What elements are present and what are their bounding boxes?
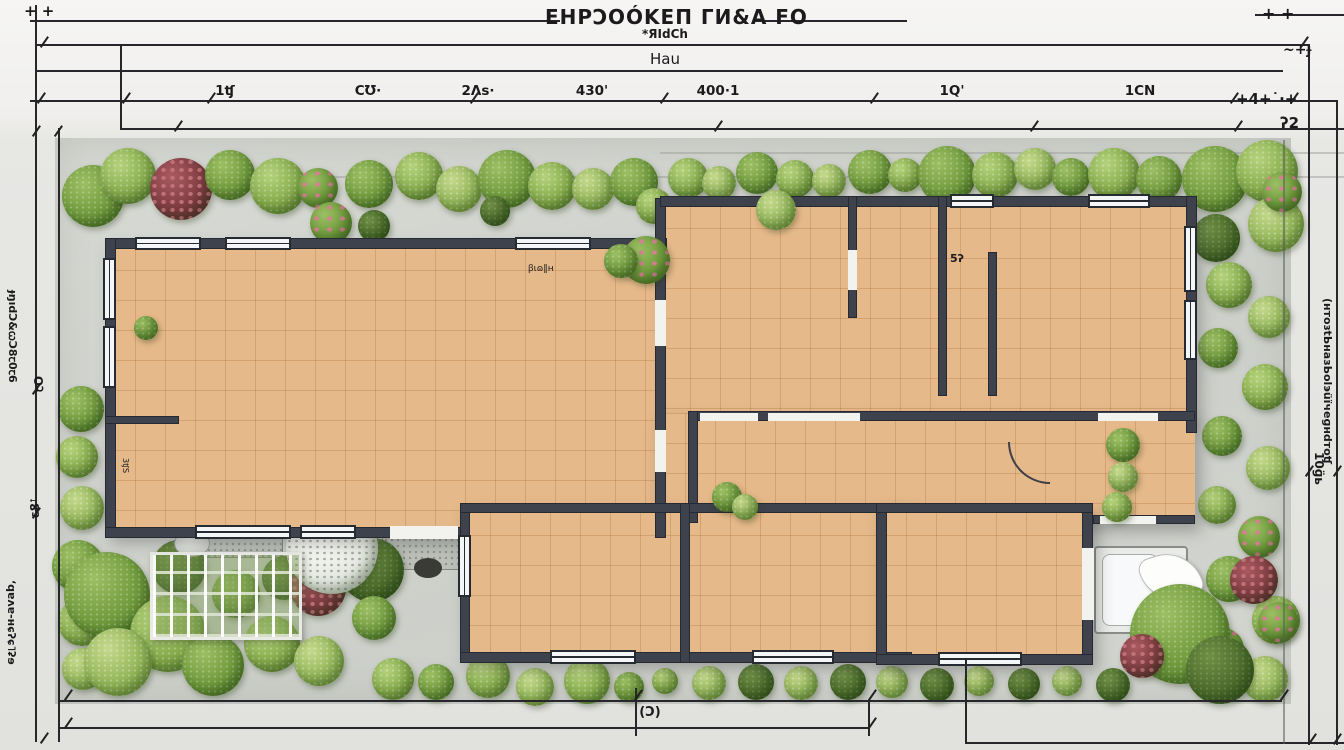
blanket bbox=[682, 240, 740, 290]
dimension-line bbox=[1283, 140, 1285, 744]
coat-rack-pole bbox=[303, 304, 316, 430]
toilet bbox=[136, 476, 174, 508]
garden-bush bbox=[150, 158, 212, 220]
cabinet bbox=[890, 544, 910, 624]
sofa-cushion bbox=[948, 424, 990, 454]
table bbox=[1026, 226, 1078, 308]
garden-bush bbox=[418, 664, 454, 700]
garden-bush bbox=[736, 152, 778, 194]
dimension-tick bbox=[37, 92, 46, 104]
garden-bush bbox=[1206, 262, 1252, 308]
basin-bowl bbox=[496, 526, 514, 542]
floor-plan-scene: EHPϽOÓKЕП ГИ&А FO *ЯIdCh Hau 1ʧ CƱ· 2Ʌs·… bbox=[0, 0, 1344, 750]
pillow bbox=[704, 526, 746, 544]
dimension-line bbox=[120, 44, 122, 130]
shelf-unit bbox=[360, 292, 402, 394]
garden-bush bbox=[1242, 364, 1288, 410]
garden-bush bbox=[692, 666, 726, 700]
dim-label-top: 400·1 bbox=[678, 83, 758, 99]
garden-bush bbox=[1108, 462, 1138, 492]
garden-bush bbox=[1096, 668, 1130, 702]
doorway bbox=[390, 526, 458, 539]
nightstand bbox=[1050, 522, 1068, 540]
doorway bbox=[768, 413, 860, 421]
garden-bush bbox=[528, 162, 576, 210]
dimension-tick bbox=[174, 120, 183, 132]
garden-bush bbox=[848, 150, 892, 194]
garden-bush bbox=[1088, 148, 1140, 200]
window bbox=[515, 237, 591, 250]
window bbox=[458, 535, 471, 597]
wardrobe bbox=[888, 206, 936, 258]
dimension-tick bbox=[1030, 120, 1039, 132]
garden-bush bbox=[1120, 634, 1164, 678]
garden-bush bbox=[564, 658, 610, 704]
doorway bbox=[700, 413, 758, 421]
dimension-tick bbox=[122, 92, 131, 104]
blanket bbox=[1118, 272, 1172, 352]
dim-corner-mark: ~+ɟ bbox=[1283, 42, 1311, 58]
plan-subtitle-2: Hau bbox=[545, 50, 785, 68]
window bbox=[1184, 300, 1197, 360]
rug-oval bbox=[1028, 318, 1062, 342]
wall-cabinet bbox=[383, 250, 523, 276]
pillow bbox=[1120, 247, 1168, 267]
dim-label-top: 2Ʌs· bbox=[438, 83, 518, 99]
dim-label-top: 1Q' bbox=[912, 83, 992, 99]
dimension-line bbox=[965, 742, 1344, 744]
island-label: ꞵɩɷ‖ʜ bbox=[528, 261, 554, 274]
dim-text-left-upper: ɟŋıdƆ&ꞷƆ8ꞇ0ꞇ6 bbox=[5, 290, 20, 383]
dimension-line bbox=[1308, 44, 1310, 745]
dim-text-right: (ʜтоɜtЬназЬоlэüïчеɡнdтоʧ bbox=[1321, 298, 1334, 464]
garden-bush bbox=[738, 664, 774, 700]
garden-bush bbox=[1102, 492, 1132, 522]
dim-label-left: ɛ8ꜛ bbox=[28, 498, 42, 518]
sofa bbox=[516, 422, 592, 456]
window bbox=[135, 237, 201, 250]
blanket bbox=[542, 598, 588, 632]
doorway bbox=[1098, 413, 1158, 421]
garden-bush bbox=[60, 486, 104, 530]
toilet-tank bbox=[958, 362, 980, 380]
shower bbox=[942, 288, 982, 348]
sink-block bbox=[540, 380, 556, 393]
pillow bbox=[1014, 604, 1058, 632]
garden-bush bbox=[1202, 416, 1242, 456]
dimension-tick bbox=[40, 36, 49, 48]
dimension-line bbox=[58, 128, 60, 742]
garden-bush bbox=[352, 596, 396, 640]
window bbox=[752, 650, 834, 664]
dim-label-top: 430' bbox=[552, 83, 632, 99]
pillow bbox=[592, 600, 612, 630]
desk bbox=[1016, 378, 1066, 416]
vase-handle bbox=[797, 290, 809, 302]
dim-corner-mark: +4+˙·+ bbox=[1236, 90, 1297, 108]
bathroom-label: 5ʔ bbox=[950, 252, 964, 265]
doorway bbox=[655, 430, 666, 472]
pergola-trellis bbox=[150, 552, 302, 640]
bench bbox=[940, 640, 1024, 655]
garden-bush bbox=[888, 158, 922, 192]
garden-bush bbox=[1230, 556, 1278, 604]
window bbox=[103, 326, 116, 388]
window bbox=[300, 525, 356, 539]
wall bbox=[876, 503, 887, 665]
garden-bush bbox=[100, 148, 156, 204]
dim-corner-mark: + + bbox=[24, 2, 54, 20]
dimension-line bbox=[60, 727, 870, 729]
garden-bush bbox=[964, 666, 994, 696]
sofa-cushion bbox=[920, 434, 948, 482]
garden-bush bbox=[205, 150, 255, 200]
doorway bbox=[1082, 548, 1094, 620]
garden-bush bbox=[604, 244, 638, 278]
dim-text-left-lower: ʻqɐʌɐ-ʜɕʔɕ˥ʡɘ bbox=[5, 580, 18, 665]
dim-label-top: 1CN bbox=[1100, 83, 1180, 99]
garden-bush bbox=[876, 666, 908, 698]
garden-bush bbox=[1238, 516, 1280, 558]
toilet-seat bbox=[140, 432, 156, 448]
dimension-line bbox=[30, 100, 1336, 102]
garden-bush bbox=[84, 628, 152, 696]
pillow bbox=[1008, 560, 1048, 600]
garden-bush bbox=[1198, 486, 1236, 524]
coat-rack-knob bbox=[296, 280, 322, 306]
dim-label-right: 10ɡ̈ь bbox=[1312, 452, 1326, 485]
kitchen-island bbox=[490, 320, 594, 360]
rug-round bbox=[862, 428, 892, 454]
dimension-tick bbox=[40, 732, 49, 744]
garden-bush bbox=[58, 386, 104, 432]
dim-label-top: 1ʧ bbox=[185, 83, 265, 99]
dimension-line bbox=[965, 658, 967, 744]
garden-bush bbox=[756, 190, 796, 230]
dim-corner-mark: + + bbox=[1262, 4, 1294, 23]
garden-bush bbox=[294, 636, 344, 686]
entry-mat bbox=[1128, 354, 1176, 408]
garden-bush bbox=[1186, 636, 1254, 704]
dim-corner-mark: ʔ2 bbox=[1280, 114, 1299, 132]
dimension-tick bbox=[870, 92, 879, 104]
garden-bush bbox=[1198, 328, 1238, 368]
dim-label-top: CƱ· bbox=[328, 83, 408, 99]
window bbox=[950, 194, 994, 208]
garden-bush bbox=[784, 666, 818, 700]
garden-bush bbox=[920, 668, 954, 702]
dimension-line bbox=[60, 700, 1282, 702]
window bbox=[103, 258, 116, 320]
dim-label-bottom: (Ɔ) bbox=[620, 705, 680, 720]
dimension-tick bbox=[1234, 120, 1243, 132]
garden-bush bbox=[134, 316, 158, 340]
garden-bush bbox=[1052, 158, 1090, 196]
garden-bush bbox=[1106, 428, 1140, 462]
nightstand bbox=[498, 596, 512, 614]
sheet bbox=[560, 508, 600, 542]
window bbox=[195, 525, 291, 539]
garden-bush bbox=[182, 634, 244, 696]
garden-bush bbox=[1014, 148, 1056, 190]
dimension-line bbox=[35, 44, 1308, 46]
dimension-line bbox=[1336, 100, 1338, 745]
dimension-tick bbox=[660, 92, 669, 104]
plan-subtitle: *ЯIdCh bbox=[545, 27, 785, 41]
garden-bush bbox=[702, 166, 736, 200]
garden-bush bbox=[56, 436, 98, 478]
dimension-line bbox=[120, 128, 1344, 130]
blanket bbox=[702, 548, 748, 642]
garden-bush bbox=[1008, 668, 1040, 700]
garden-bush bbox=[830, 664, 866, 700]
dimension-line bbox=[30, 20, 560, 22]
garden-bush bbox=[1262, 172, 1302, 212]
closet bbox=[684, 514, 698, 624]
kitchen-cabinet bbox=[450, 320, 480, 384]
garden-bush bbox=[614, 672, 644, 702]
dimension-line bbox=[35, 5, 37, 742]
vanity-label: 3ʧS bbox=[121, 458, 130, 473]
garden-bush bbox=[345, 160, 393, 208]
doorway bbox=[655, 300, 666, 346]
garden-bush bbox=[572, 168, 614, 210]
window bbox=[1184, 226, 1197, 292]
plan-title: EHPϽOÓKЕП ГИ&А FO bbox=[545, 5, 785, 29]
garden-object bbox=[414, 558, 442, 578]
dim-label-left: ꞇO bbox=[30, 376, 47, 392]
dimension-line bbox=[35, 70, 1283, 72]
dimension-line bbox=[868, 700, 870, 736]
garden-bush bbox=[1258, 602, 1298, 642]
garden-bush bbox=[732, 494, 758, 520]
window bbox=[1088, 194, 1150, 208]
pillow bbox=[684, 210, 738, 228]
garden-bush bbox=[812, 164, 846, 198]
wall-cabinet bbox=[218, 248, 312, 270]
coat-rack-knob bbox=[294, 426, 324, 454]
garden-bush bbox=[436, 166, 482, 212]
dimension-tick bbox=[714, 120, 723, 132]
garden-bush bbox=[1052, 666, 1082, 696]
garden-bush bbox=[972, 152, 1018, 198]
area-rug bbox=[158, 295, 272, 451]
garden-bush bbox=[652, 668, 678, 694]
window bbox=[550, 650, 636, 664]
armchair bbox=[812, 526, 846, 566]
garden-bush bbox=[1192, 214, 1240, 262]
nightstand bbox=[618, 596, 632, 614]
garden-bush bbox=[372, 658, 414, 700]
garden-bush bbox=[480, 196, 510, 226]
sink-bowl bbox=[118, 480, 133, 495]
pillow bbox=[518, 600, 538, 630]
